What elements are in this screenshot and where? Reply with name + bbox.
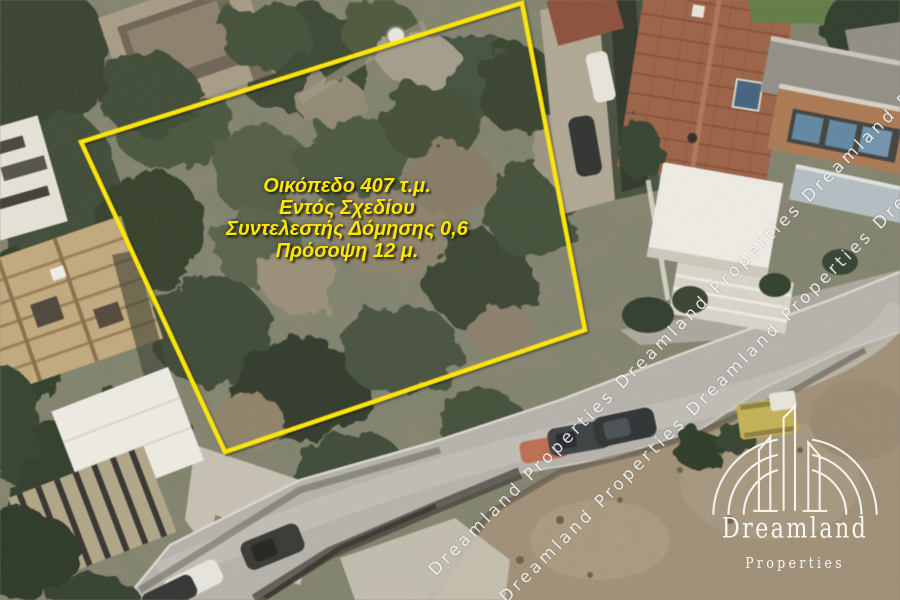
dreamland-properties-logo: Dreamland Properties — [700, 390, 890, 590]
annotation-line-building-factor: Συντελεστής Δόμησης 0,6 — [226, 219, 468, 241]
annotation-line-zoning: Εντός Σχεδίου — [226, 198, 468, 220]
logo-brand-subtitle: Properties — [745, 555, 845, 572]
annotation-line-area: Οικόπεδο 407 τ.μ. — [226, 176, 468, 198]
satellite-listing-photo: Dreamland Properties Dreamland Propertie… — [0, 0, 900, 600]
logo-arcs-left — [713, 440, 778, 515]
annotation-line-frontage: Πρόσοψη 12 μ. — [226, 241, 468, 263]
plot-annotation: Οικόπεδο 407 τ.μ. Εντός Σχεδίου Συντελεσ… — [226, 176, 468, 262]
logo-brand-name: Dreamland — [722, 513, 868, 545]
logo-arcs-right — [812, 440, 877, 515]
